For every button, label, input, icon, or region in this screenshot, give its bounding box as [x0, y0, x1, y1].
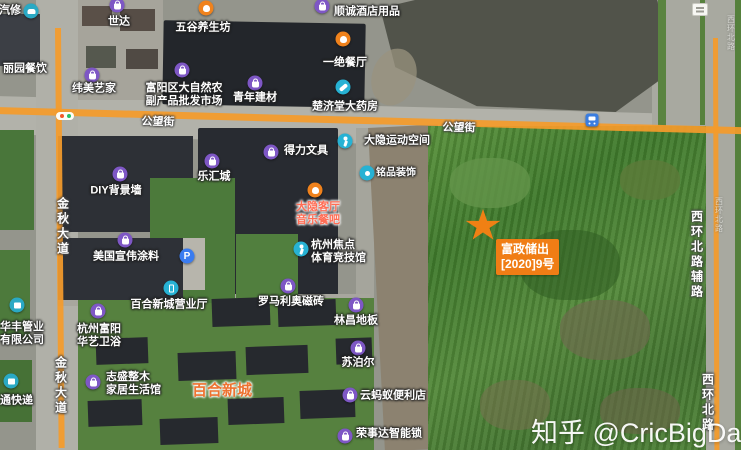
supor-icon[interactable]	[351, 341, 366, 356]
liyuan-restaurant-label[interactable]: 丽园餐饮	[3, 63, 47, 76]
xihuan-north-road-faint-top: 西环北路	[726, 15, 737, 51]
traffic-green-dot	[67, 114, 71, 118]
zhisheng-wood-home-label[interactable]: 志盛整木家居生活馆	[106, 371, 161, 397]
qingnian-building-materials-label[interactable]: 青年建材	[233, 92, 277, 105]
shida-label[interactable]: 世达	[108, 16, 130, 29]
diy-background-wall-label[interactable]: DIY背景墙	[90, 185, 141, 198]
traffic-light-icon	[56, 112, 74, 120]
auto-repair-icon[interactable]	[24, 4, 39, 19]
residential-block-7	[228, 397, 285, 425]
mingpin-decoration-icon[interactable]	[360, 166, 375, 181]
hangzhou-focus-sports-arena-label[interactable]: 杭州焦点体育竞技馆	[311, 239, 366, 265]
qingnian-building-materials-icon[interactable]	[248, 76, 263, 91]
residential-block-4	[246, 345, 309, 375]
linchang-flooring-icon[interactable]	[349, 298, 364, 313]
dayin-sports-space-icon[interactable]	[338, 134, 353, 149]
chujitang-pharmacy-label[interactable]: 楚济堂大药房	[312, 101, 378, 114]
dayin-sports-space-label[interactable]: 大隐运动空间	[364, 135, 430, 148]
express-delivery-icon[interactable]	[4, 374, 19, 389]
sherwin-williams-paint-label[interactable]: 美国宣伟涂料	[93, 251, 159, 264]
diy-background-wall-icon[interactable]	[113, 167, 128, 182]
romario-tiles-label[interactable]: 罗马利奥磁砖	[258, 296, 324, 309]
shuncheng-hotel-supplies-label[interactable]: 顺诚酒店用品	[334, 6, 400, 19]
hangzhou-focus-sports-arena-icon[interactable]	[294, 242, 309, 257]
building-roof-4	[126, 49, 158, 69]
weimei-yijia-icon[interactable]	[85, 68, 100, 83]
express-delivery-label[interactable]: 通快递	[0, 395, 33, 408]
jinqiu-avenue-upper: 金秋大道	[55, 197, 72, 257]
road-sign-badge	[692, 3, 708, 16]
gongwang-street-right: 公望街	[442, 119, 475, 136]
parking-lot-icon[interactable]	[180, 249, 195, 264]
parcel-label-line1: 富政储出	[501, 242, 554, 257]
baihe-xincheng-area-label[interactable]: 百合新城	[192, 382, 252, 400]
satellite-map[interactable]: 富政储出 [2020]9号 知乎 @CricBigData 公望街公望街金秋大道…	[0, 0, 741, 459]
trees-left-1	[0, 130, 34, 230]
gongwang-street-left: 公望街	[141, 113, 174, 130]
parcel-label: 富政储出 [2020]9号	[496, 239, 559, 275]
shuncheng-hotel-supplies-icon[interactable]	[315, 0, 330, 14]
residential-block-5	[178, 351, 237, 381]
zhisheng-wood-home-icon[interactable]	[86, 375, 101, 390]
residential-block-8	[160, 417, 219, 445]
dayin-music-restaurant-icon[interactable]	[308, 183, 323, 198]
mingpin-decoration-label[interactable]: 铭品装饰	[376, 167, 416, 180]
linchang-flooring-label[interactable]: 林昌地板	[334, 315, 378, 328]
trees-left-3	[0, 360, 32, 422]
wugu-health-shop-label[interactable]: 五谷养生坊	[176, 22, 231, 35]
residential-block-10	[88, 399, 143, 427]
deli-stationery-label[interactable]: 得力文具	[284, 145, 328, 158]
yijue-restaurant-icon[interactable]	[336, 32, 351, 47]
lehui-city-icon[interactable]	[205, 154, 220, 169]
huafeng-pipe-company-label[interactable]: 华丰管业有限公司	[0, 321, 44, 347]
xihuan-north-side-road: 西环北路辅路	[689, 210, 706, 300]
hangzhou-huayi-bathroom-label[interactable]: 杭州富阳华艺卫浴	[77, 323, 121, 349]
xihuan-north-road-faint-mid: 西环北路	[714, 197, 725, 233]
dayin-music-restaurant-label[interactable]: 大隐客厅音乐餐吧	[296, 201, 340, 227]
royalstar-smart-lock-icon[interactable]	[338, 429, 353, 444]
field-patch-1	[560, 300, 650, 360]
wugu-health-shop-icon[interactable]	[199, 1, 214, 16]
royalstar-smart-lock-label[interactable]: 荣事达智能锁	[356, 428, 422, 441]
jinqiu-avenue-lower: 金秋大道	[53, 356, 70, 416]
building-top-left	[0, 14, 40, 66]
yunmayi-convenience-store-label[interactable]: 云蚂蚁便利店	[360, 390, 426, 403]
green-strip-2	[700, 0, 705, 125]
parcel-label-line2: [2020]9号	[501, 257, 554, 272]
auto-repair-label[interactable]: 汽修	[0, 5, 21, 18]
lehui-city-label[interactable]: 乐汇城	[198, 171, 231, 184]
fuyang-farm-produce-market-icon[interactable]	[175, 63, 190, 78]
supor-label[interactable]: 苏泊尔	[342, 357, 375, 370]
chujitang-pharmacy-icon[interactable]	[336, 80, 351, 95]
deli-stationery-icon[interactable]	[264, 145, 279, 160]
building-roof-3	[86, 46, 116, 68]
bus-station-icon[interactable]	[586, 114, 599, 127]
huafeng-pipe-company-icon[interactable]	[10, 298, 25, 313]
field-patch-3	[620, 160, 680, 200]
romario-tiles-icon[interactable]	[281, 279, 296, 294]
field-patch-4	[450, 158, 530, 208]
baihe-xincheng-business-hall-label[interactable]: 百合新城营业厅	[131, 299, 208, 312]
green-strip-3	[735, 0, 741, 452]
bottom-white-bar	[0, 450, 741, 459]
weimei-yijia-label[interactable]: 纬美艺家	[72, 83, 116, 96]
sherwin-williams-paint-icon[interactable]	[118, 233, 133, 248]
yijue-restaurant-label[interactable]: 一绝餐厅	[323, 57, 367, 70]
hangzhou-huayi-bathroom-icon[interactable]	[91, 304, 106, 319]
parking-ground	[183, 238, 205, 290]
traffic-red-dot	[60, 114, 64, 118]
yunmayi-convenience-store-icon[interactable]	[343, 388, 358, 403]
watermark: 知乎 @CricBigData	[531, 411, 741, 450]
fuyang-farm-produce-market-label[interactable]: 富阳区大自然农副产品批发市场	[146, 82, 223, 108]
baihe-xincheng-business-hall-icon[interactable]	[164, 281, 179, 296]
